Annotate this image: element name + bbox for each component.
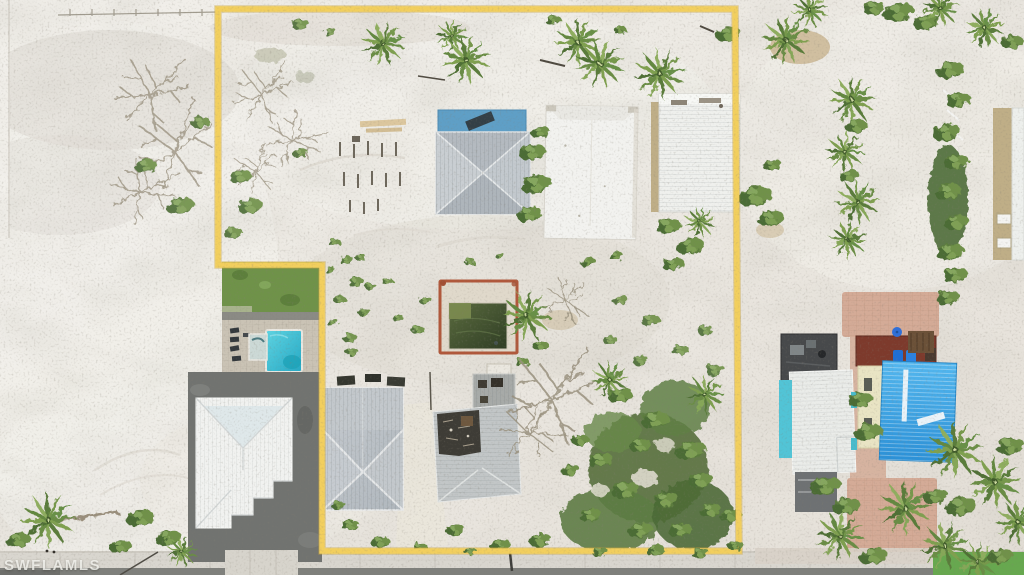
aerial-photo: SWFLAMLS bbox=[0, 0, 1024, 575]
watermark: SWFLAMLS bbox=[4, 558, 101, 575]
photo-grain bbox=[0, 0, 1024, 575]
aerial-scene bbox=[0, 0, 1024, 575]
